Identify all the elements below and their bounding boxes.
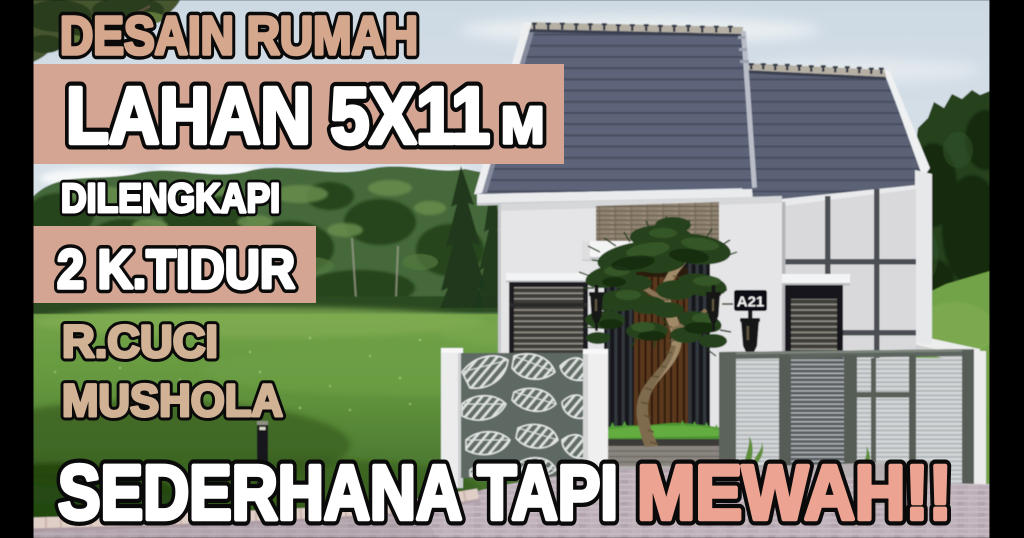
svg-text:DESAIN RUMAH: DESAIN RUMAH bbox=[60, 6, 418, 66]
svg-text:A21: A21 bbox=[737, 294, 765, 311]
svg-text:MEWAH!!: MEWAH!! bbox=[637, 450, 952, 536]
svg-text:M: M bbox=[501, 97, 544, 155]
svg-text:LAHAN 5X11: LAHAN 5X11 bbox=[66, 71, 490, 160]
svg-text:SEDERHANA TAPI: SEDERHANA TAPI bbox=[58, 450, 618, 536]
svg-text:2 K.TIDUR: 2 K.TIDUR bbox=[57, 238, 295, 300]
svg-text:MUSHOLA: MUSHOLA bbox=[62, 375, 283, 426]
svg-text:DILENGKAPI: DILENGKAPI bbox=[61, 175, 280, 221]
svg-text:R.CUCI: R.CUCI bbox=[62, 316, 218, 367]
